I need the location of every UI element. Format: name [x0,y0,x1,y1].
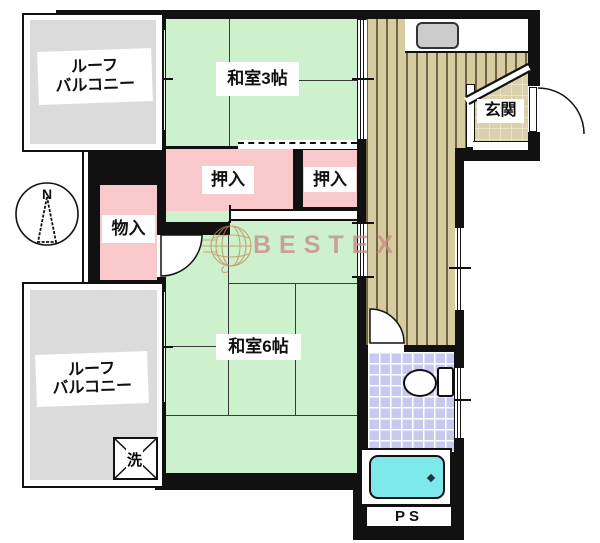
wall-face-line-left [82,145,84,290]
tatami-line [166,415,357,416]
door-swing-entrance [538,88,584,134]
label-monoire: 物入 [102,215,155,243]
label-line: バルコニー [55,75,135,96]
label-washitsu3: 和室3帖 [216,62,299,96]
label-genkan: 玄関 [477,99,524,123]
floor-plan: 洗 N [0,0,600,543]
window-tick [352,222,374,224]
label-roof-balcony-bottom: ルーフ バルコニー [35,351,149,407]
toilet-tank [437,367,454,397]
label-line: バルコニー [52,378,132,399]
washroom-door-opening [368,343,404,352]
label-oshiire-right: 押入 [304,167,356,192]
window-bathroom-east [455,368,464,438]
toilet-bowl [403,369,437,397]
hallway-floor [366,19,455,345]
window-tick [352,78,374,80]
laundry-pan: 洗 [113,437,158,480]
watermark-text: BESTEX [253,231,401,260]
door-opening [157,235,166,277]
window-tick [449,267,471,269]
genkan-frame-left [466,84,475,148]
entrance-door-leaf [529,87,537,132]
tatami-line [228,283,357,284]
genkan-frame-bottom [473,141,528,150]
label-pipe-space: PS [367,507,451,526]
wall-stub [157,222,230,235]
label-oshiire-left: 押入 [202,166,254,194]
fusuma-sliding-door [230,209,357,221]
laundry-label: 洗 [126,449,143,470]
label-roof-balcony-top: ルーフ バルコニー [37,48,153,105]
compass-north-label: N [42,186,52,202]
door-tick [229,205,231,223]
shoe-cabinet [416,22,459,49]
tatami-line [228,221,229,415]
compass: N [16,183,78,245]
fusuma-dotted-line [238,142,357,144]
label-washitsu6: 和室6帖 [216,334,301,360]
window-tick [352,276,374,278]
window-hallway-east [455,228,464,310]
